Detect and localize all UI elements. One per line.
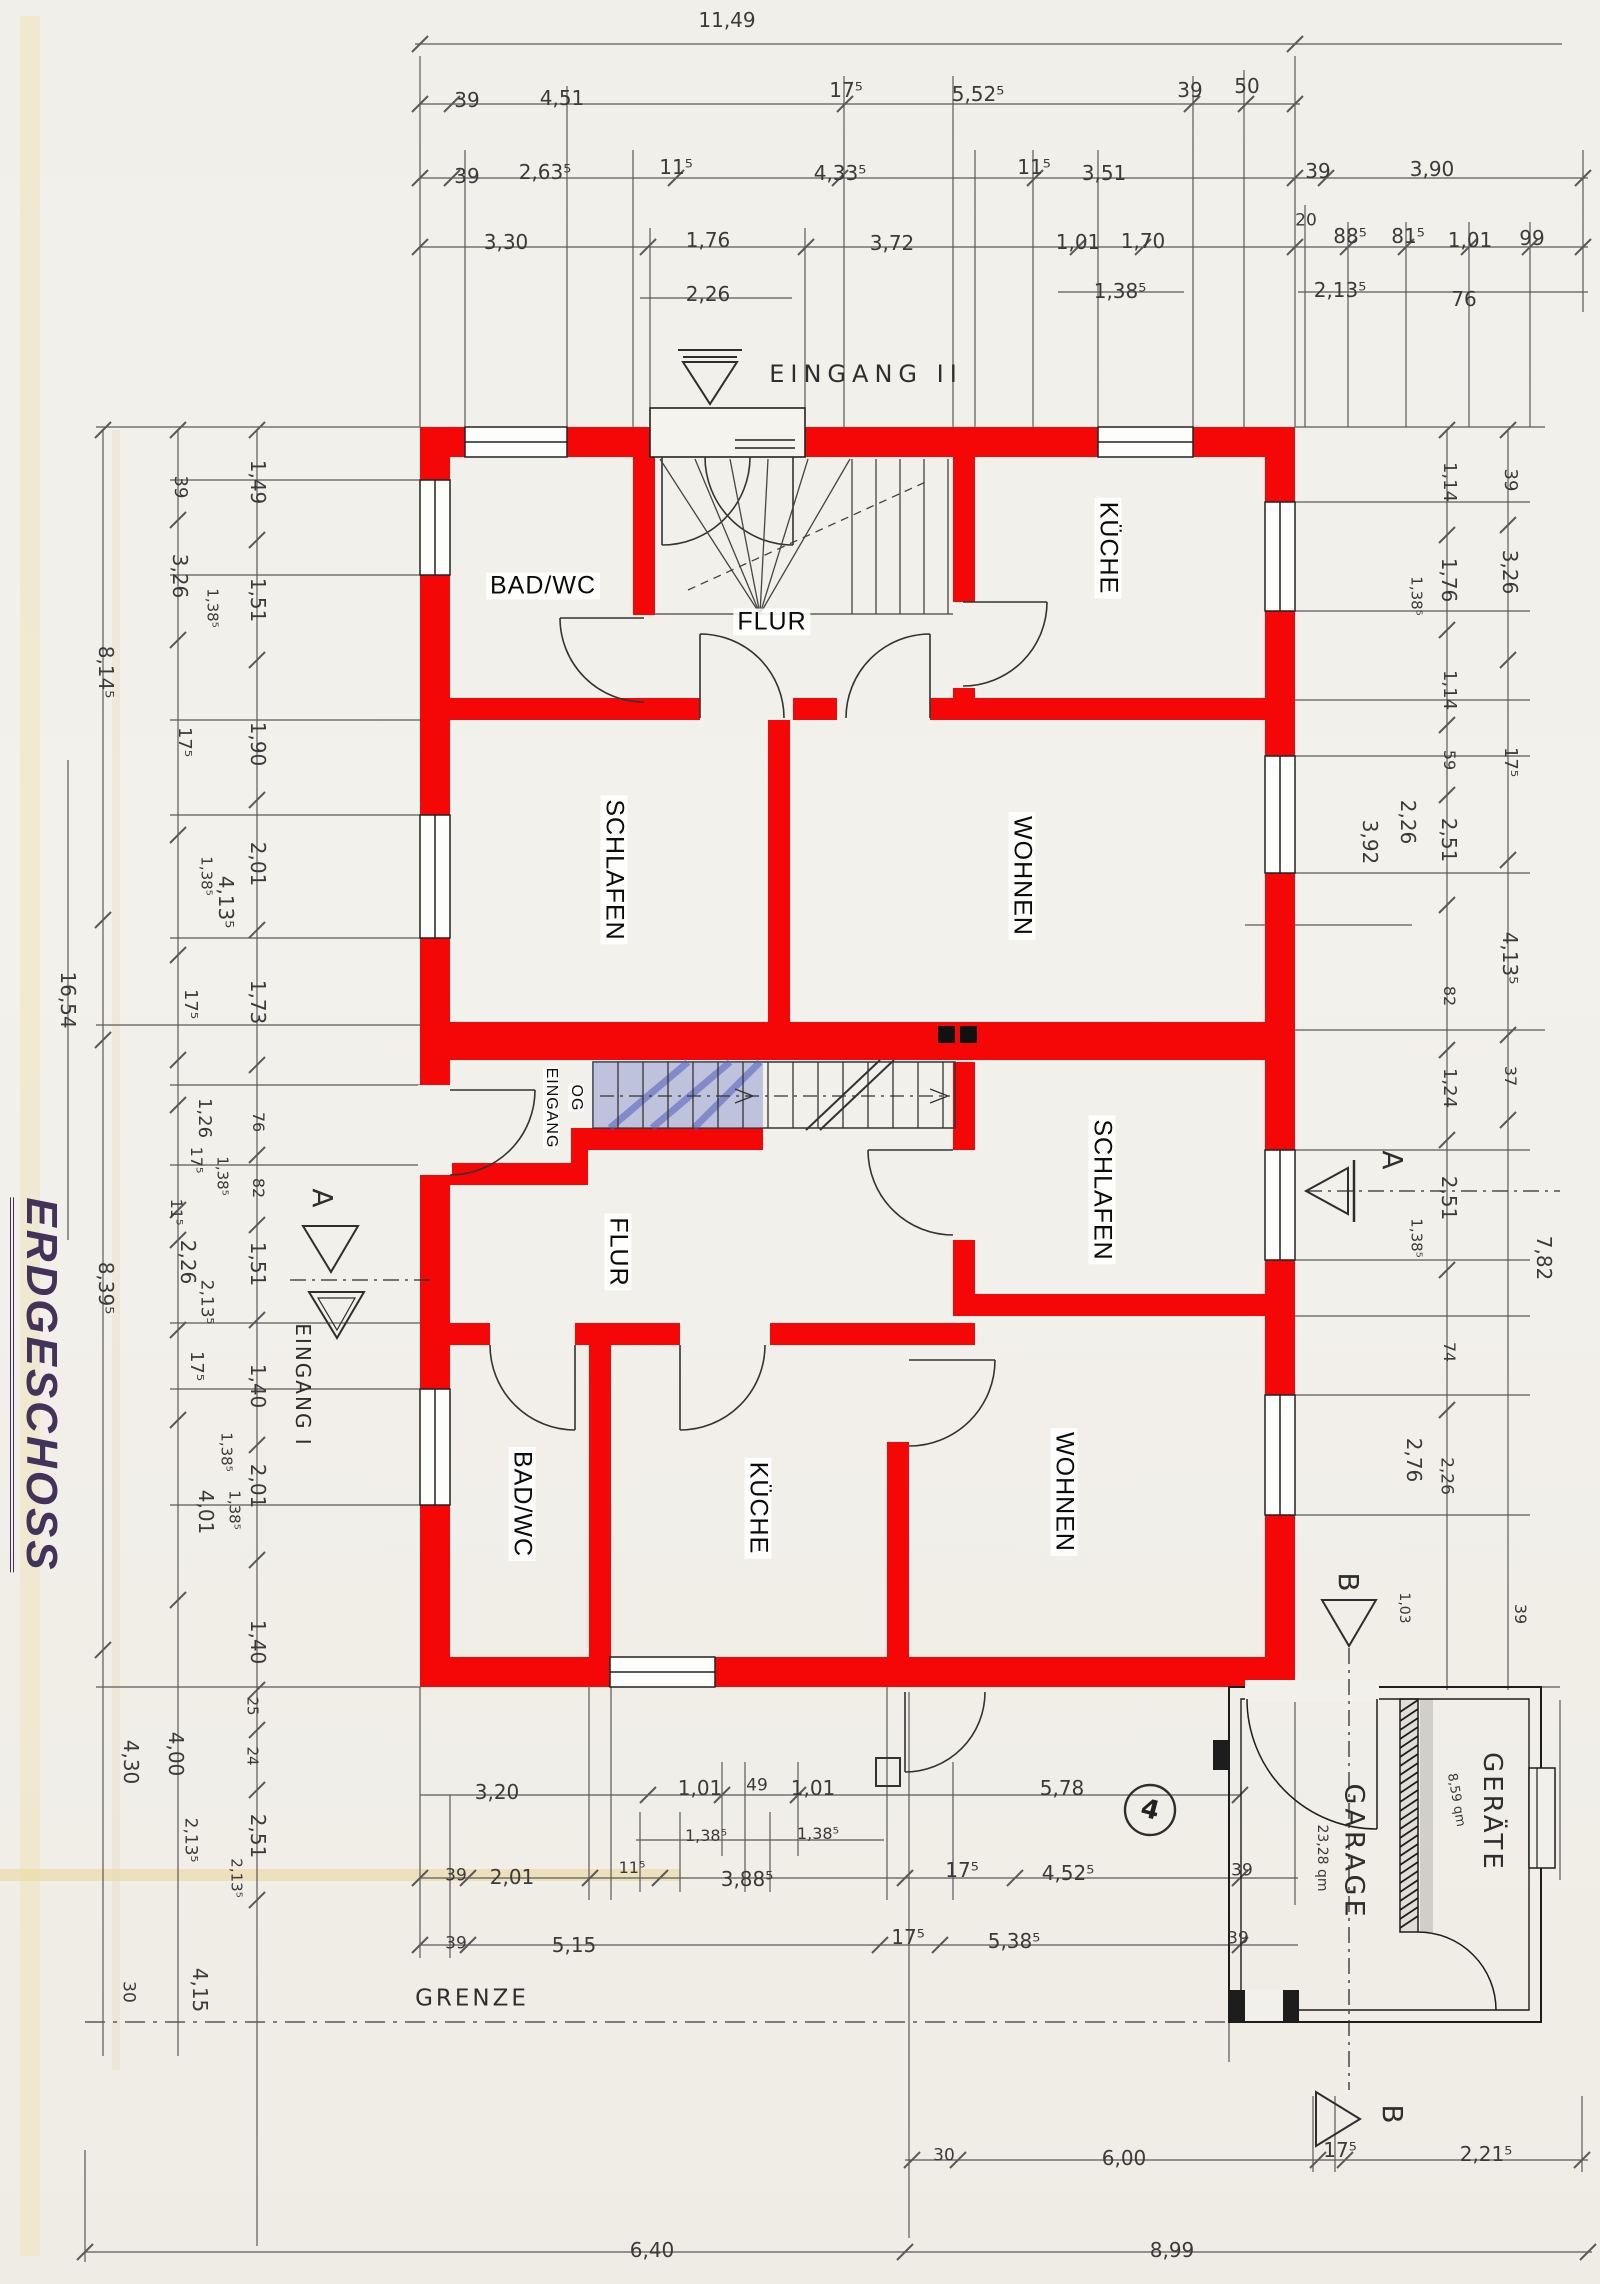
dimension-label: 1,40 bbox=[248, 1364, 268, 1409]
dimension-label: 6,40 bbox=[630, 2240, 675, 2260]
dimension-label: 17⁵ bbox=[181, 989, 199, 1019]
dimension-label: 2,13⁵ bbox=[198, 1280, 215, 1325]
dimension-label: 1,14 bbox=[1440, 462, 1458, 502]
marker-label: B bbox=[1334, 1572, 1362, 1591]
dimension-label: 7,82 bbox=[1534, 1236, 1554, 1281]
dimension-label: 24 bbox=[245, 1746, 260, 1765]
floorplan-scan: ERDGESCHOSS 11,49394,5117⁵5,52⁵3950392,6… bbox=[0, 0, 1600, 2284]
dimension-label: 1,38⁵ bbox=[227, 1490, 242, 1529]
room-label: SCHLAFEN bbox=[601, 795, 628, 944]
room-label: BAD/WC bbox=[509, 1447, 536, 1561]
dimension-label: 11⁵ bbox=[619, 1860, 646, 1876]
dimension-label: 1,38⁵ bbox=[205, 588, 220, 627]
dimension-label: 2,13⁵ bbox=[182, 1818, 199, 1863]
dimension-label: 1,73 bbox=[248, 980, 268, 1025]
dimension-label: 1,38⁵ bbox=[215, 1156, 230, 1195]
dimension-label: 3,72 bbox=[870, 233, 915, 253]
dimension-label: 39 bbox=[445, 1936, 467, 1953]
dimension-label: 3,90 bbox=[1410, 159, 1455, 179]
dimension-label: 17⁵ bbox=[175, 727, 193, 757]
dimension-label: 1,70 bbox=[1121, 231, 1166, 251]
dimension-label: 1,38⁵ bbox=[219, 1432, 234, 1471]
room-label: KÜCHE bbox=[745, 1458, 772, 1559]
room-label: KÜCHE bbox=[1095, 498, 1122, 599]
dimension-label: 17⁵ bbox=[945, 1860, 978, 1880]
dimension-label: 17⁵ bbox=[187, 1351, 205, 1381]
dimension-label: 82 bbox=[250, 1178, 266, 1198]
dimension-label: 39 bbox=[454, 90, 479, 110]
dimension-label: 8,14⁵ bbox=[96, 646, 116, 699]
dimension-label: 5,15 bbox=[552, 1935, 597, 1955]
dimension-label: 88⁵ bbox=[1333, 226, 1366, 246]
room-label: WOHNEN bbox=[1009, 812, 1036, 940]
dimension-label: 8,99 bbox=[1150, 2240, 1195, 2260]
dimension-label: 20 bbox=[1295, 213, 1317, 230]
dimension-label: 39 bbox=[171, 476, 189, 499]
marker-label: B bbox=[1378, 2104, 1406, 2123]
dimension-label: 2,21⁵ bbox=[1460, 2144, 1513, 2164]
dimension-label: 3,20 bbox=[475, 1782, 520, 1802]
dimension-label: 39 bbox=[1177, 80, 1202, 100]
dimension-label: 76 bbox=[1451, 289, 1476, 309]
room-label: EINGANG bbox=[543, 1068, 559, 1149]
dimension-label: 81⁵ bbox=[1391, 226, 1424, 246]
marker-label: GRENZE bbox=[415, 1988, 529, 2011]
marker-label: A bbox=[1378, 1150, 1406, 1169]
dimension-label: 2,13⁵ bbox=[229, 1858, 244, 1897]
dimension-label: 30 bbox=[120, 1981, 137, 2003]
dimension-label: 8,39⁵ bbox=[96, 1262, 116, 1315]
dimension-label: 4,33⁵ bbox=[814, 163, 867, 183]
dimension-label: 59 bbox=[1441, 750, 1457, 770]
dimension-label: 39 bbox=[454, 166, 479, 186]
marker-label: GARAGE bbox=[1341, 1783, 1368, 1920]
dimension-label: 39 bbox=[1512, 1604, 1528, 1624]
dimension-label: 3,26 bbox=[1500, 550, 1520, 595]
entrance-porch bbox=[650, 408, 805, 457]
dimension-label: 23,28 qm bbox=[1315, 1824, 1329, 1891]
dimension-label: 39 bbox=[1227, 1931, 1249, 1948]
dimension-label: 2,26 bbox=[1398, 800, 1418, 845]
dimension-label: 5,38⁵ bbox=[988, 1931, 1041, 1951]
dimension-label: 1,49 bbox=[248, 460, 268, 505]
dimension-label: 3,92 bbox=[1360, 820, 1380, 865]
dimension-label: 50 bbox=[1234, 76, 1259, 96]
dimension-label: 2,01 bbox=[248, 1464, 268, 1509]
dimension-label: 4,01 bbox=[196, 1490, 216, 1535]
dimension-label: 16,54 bbox=[58, 971, 78, 1028]
dimension-label: 1,14 bbox=[1440, 670, 1458, 710]
dimension-label: 3,51 bbox=[1082, 163, 1127, 183]
dimension-label: 17⁵ bbox=[1501, 747, 1519, 777]
dimension-label: 99 bbox=[1519, 228, 1544, 248]
marker-label: EINGANG I bbox=[293, 1323, 313, 1446]
room-label: FLUR bbox=[605, 1213, 632, 1290]
dimension-label: 39 bbox=[1501, 469, 1519, 492]
dimension-label: 3,26 bbox=[170, 554, 190, 599]
dimension-label: 1,76 bbox=[1439, 558, 1459, 603]
dimension-label: 1,38⁵ bbox=[199, 856, 214, 895]
dimension-label: 1,24 bbox=[1440, 1068, 1458, 1108]
marker-label: EINGANG II bbox=[769, 362, 963, 386]
dimension-label: 2,51 bbox=[1439, 1176, 1459, 1221]
dimension-label: 30 bbox=[933, 2148, 955, 2165]
dimension-label: 39 bbox=[445, 1868, 467, 1885]
dimension-label: 3,30 bbox=[484, 232, 529, 252]
dimension-label: 1,51 bbox=[248, 1242, 268, 1287]
dimension-label: 2,13⁵ bbox=[1314, 280, 1367, 300]
dimension-label: 1,38⁵ bbox=[797, 1826, 839, 1842]
dimension-label: 3,88⁵ bbox=[721, 1869, 774, 1889]
dimension-label: 2,26 bbox=[1438, 1457, 1455, 1495]
dimension-label: 2,63⁵ bbox=[519, 162, 572, 182]
dimension-label: 11⁵ bbox=[168, 1199, 184, 1226]
dimension-label: 11,49 bbox=[698, 10, 755, 30]
dimension-label: 1,38⁵ bbox=[1409, 1218, 1424, 1257]
dimension-label: 2,01 bbox=[490, 1867, 535, 1887]
dimension-label: 1,26 bbox=[195, 1098, 213, 1138]
dimension-label: 2,26 bbox=[686, 284, 731, 304]
marker-label: A bbox=[308, 1188, 336, 1207]
dimension-label: 11⁵ bbox=[659, 157, 692, 177]
dimension-label: 74 bbox=[1441, 1342, 1457, 1362]
dimension-label: 4,51 bbox=[540, 88, 585, 108]
dimension-label: 11⁵ bbox=[1017, 157, 1050, 177]
dimension-label: 1,76 bbox=[686, 230, 731, 250]
section-markers bbox=[290, 350, 1560, 2146]
dimension-label: 2,51 bbox=[1439, 818, 1459, 863]
dimension-label: 1,90 bbox=[248, 722, 268, 767]
dimension-label: 5,78 bbox=[1040, 1778, 1085, 1798]
dimension-label: 1,38⁵ bbox=[1094, 281, 1147, 301]
dimension-label: 2,76 bbox=[1404, 1438, 1424, 1483]
marker-label: GERÄTE bbox=[1479, 1752, 1505, 1872]
dimension-label: 1,38⁵ bbox=[685, 1828, 727, 1844]
dimension-label: 4,13⁵ bbox=[216, 876, 236, 929]
dimension-label: 2,51 bbox=[248, 1814, 268, 1859]
dimension-label: 6,00 bbox=[1102, 2148, 1147, 2168]
walls bbox=[420, 427, 1295, 1687]
dimension-label: 4,30 bbox=[121, 1740, 141, 1785]
dimension-label: 76 bbox=[250, 1112, 266, 1132]
room-label: BAD/WC bbox=[486, 573, 600, 600]
dimension-label: 1,03 bbox=[1397, 1592, 1411, 1623]
dimension-label: 17⁵ bbox=[1323, 2140, 1356, 2160]
dimension-label: 2,01 bbox=[248, 842, 268, 887]
dimension-label: 2,26 bbox=[178, 1240, 198, 1285]
dimension-label: 25 bbox=[245, 1696, 260, 1715]
dimension-label: 37 bbox=[1502, 1066, 1518, 1086]
room-label: SCHLAFEN bbox=[1089, 1115, 1116, 1264]
dimension-label: 1,01 bbox=[791, 1778, 836, 1798]
dimension-label: 4,00 bbox=[166, 1732, 186, 1777]
sheet-title: ERDGESCHOSS bbox=[10, 1197, 66, 1572]
dimension-label: 39 bbox=[1231, 1863, 1253, 1880]
dimension-label: 1,01 bbox=[678, 1778, 723, 1798]
room-label: OG bbox=[568, 1085, 584, 1112]
dimension-label: 4,52⁵ bbox=[1042, 1863, 1095, 1883]
dimension-label: 17⁵ bbox=[891, 1927, 924, 1947]
dimension-label: 39 bbox=[1305, 161, 1330, 181]
dimension-label: 1,38⁵ bbox=[1409, 576, 1424, 615]
floorplan-drawing bbox=[0, 0, 1600, 2284]
dimension-label: 49 bbox=[746, 1778, 768, 1795]
dimension-label: 1,01 bbox=[1056, 232, 1101, 252]
stairs-lower bbox=[593, 1060, 955, 1130]
dimension-label: 82 bbox=[1441, 986, 1457, 1006]
dimension-label: 4,13⁵ bbox=[1500, 932, 1520, 985]
room-label: FLUR bbox=[733, 609, 810, 636]
dimension-label: 1,01 bbox=[1448, 230, 1493, 250]
dimension-label: 1,40 bbox=[248, 1620, 268, 1665]
dimension-label: 1,51 bbox=[248, 578, 268, 623]
dimension-label: 4,15 bbox=[190, 1968, 210, 2013]
dimension-label: 17⁵ bbox=[829, 80, 862, 100]
dimension-label: 17⁵ bbox=[188, 1147, 204, 1174]
room-label: WOHNEN bbox=[1051, 1428, 1078, 1556]
dimension-label: 5,52⁵ bbox=[952, 84, 1005, 104]
